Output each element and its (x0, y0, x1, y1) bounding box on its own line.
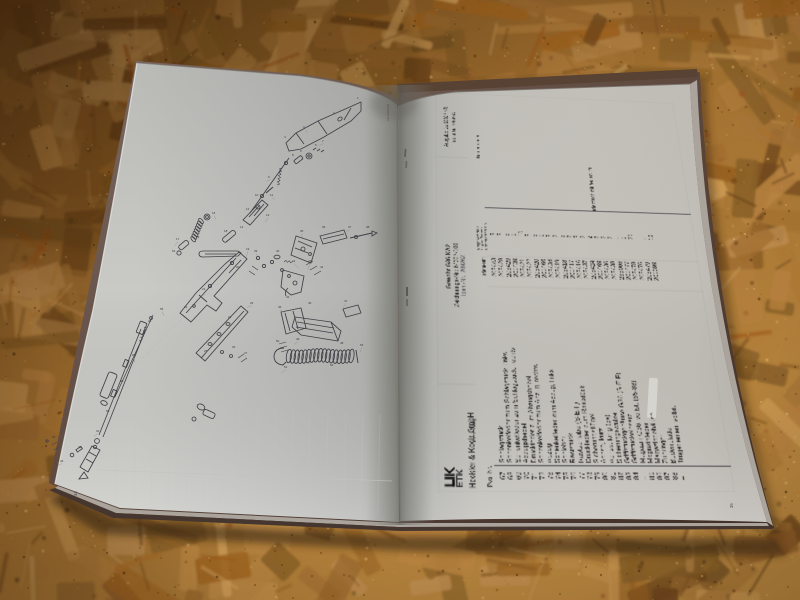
svg-text:76: 76 (571, 472, 579, 480)
svg-text:13: 13 (266, 213, 270, 217)
svg-text:5: 5 (560, 234, 567, 237)
svg-text:5: 5 (532, 234, 539, 237)
svg-text:78: 78 (587, 472, 595, 480)
svg-text:Ausgabe: 1a-1002 / NR: Ausgabe: 1a-1002 / NR (444, 107, 450, 147)
svg-text:2: 2 (580, 235, 587, 238)
svg-text:29: 29 (132, 353, 136, 357)
svg-text:28: 28 (148, 319, 152, 323)
svg-text:2: 2 (607, 236, 614, 239)
svg-text:20: 20 (628, 234, 635, 240)
svg-text:50: 50 (276, 339, 280, 343)
svg-text:74: 74 (555, 472, 563, 480)
svg-text:16: 16 (196, 235, 200, 239)
svg-text:Gewehr G36 KA2: Gewehr G36 KA2 (446, 244, 453, 289)
svg-text:5: 5 (511, 233, 518, 236)
svg-text:5: 5 (546, 234, 553, 237)
svg-text:45: 45 (278, 305, 282, 309)
svg-text:20: 20 (236, 265, 240, 269)
svg-text:47: 47 (344, 299, 348, 303)
svg-text:73: 73 (547, 472, 555, 480)
svg-text:23: 23 (250, 301, 254, 305)
svg-text:88: 88 (672, 472, 680, 480)
svg-text:72: 72 (539, 472, 547, 480)
svg-text:2: 2 (553, 234, 560, 237)
svg-text:Ident-Nr.: 99560A: Ident-Nr.: 99560A (452, 112, 458, 142)
svg-text:52: 52 (330, 363, 334, 367)
svg-text:67: 67 (500, 472, 508, 480)
svg-text:5: 5 (490, 232, 497, 235)
svg-text:56: 56 (106, 409, 110, 413)
svg-text:35: 35 (300, 229, 304, 233)
svg-text:82: 82 (618, 472, 626, 480)
svg-text:36: 36 (322, 225, 326, 229)
svg-text:12: 12 (246, 207, 250, 211)
svg-text:32: 32 (78, 445, 82, 449)
svg-text:48: 48 (340, 341, 344, 345)
svg-text:19: 19 (246, 247, 250, 251)
svg-text:54: 54 (172, 249, 176, 253)
svg-text:38: 38 (366, 225, 370, 229)
svg-text:43: 43 (308, 259, 312, 263)
svg-text:5: 5 (573, 235, 580, 238)
svg-text:84: 84 (633, 472, 641, 480)
svg-text:31: 31 (96, 429, 100, 433)
svg-text:Aw G36 KA2: Aw G36 KA2 (386, 104, 390, 121)
svg-text:Pos.-Nr.: Pos.-Nr. (487, 465, 494, 487)
svg-text:10: 10 (255, 193, 259, 197)
svg-text:49: 49 (296, 337, 300, 341)
svg-text:–: – (641, 237, 648, 240)
svg-text:ETK: ETK (454, 469, 465, 488)
svg-text:26: 26 (232, 345, 236, 349)
svg-text:77: 77 (579, 472, 587, 480)
svg-text:33: 33 (60, 459, 64, 463)
svg-text:10: 10 (648, 235, 655, 241)
svg-text:41: 41 (292, 259, 296, 263)
svg-text:11: 11 (270, 193, 273, 197)
svg-text:5: 5 (621, 236, 628, 239)
svg-text:2: 2 (587, 235, 594, 238)
svg-text:46: 46 (308, 301, 312, 305)
svg-text:39: 39 (254, 249, 258, 253)
svg-text:14: 14 (240, 225, 244, 229)
svg-text:Identisch mit /M. Nr. 21: Identisch mit /M. Nr. 21 (588, 167, 598, 211)
svg-text:80: 80 (602, 472, 610, 480)
svg-text:5: 5 (504, 233, 511, 236)
svg-text:34: 34 (52, 435, 56, 439)
svg-text:2: 2 (567, 235, 574, 238)
svg-text:aufkommenzahl in %: aufkommenzahl in % (484, 222, 489, 250)
svg-text:18: 18 (224, 229, 228, 233)
svg-text:71: 71 (531, 472, 539, 480)
svg-text:10: 10 (518, 231, 525, 237)
svg-text:205399: 205399 (651, 262, 660, 281)
svg-text:34: 34 (73, 491, 78, 496)
svg-text:22: 22 (184, 305, 188, 309)
svg-text:5: 5 (497, 233, 504, 236)
svg-text:55: 55 (160, 307, 164, 311)
svg-text:30: 30 (120, 379, 124, 383)
svg-text:5: 5 (525, 233, 532, 236)
svg-text:35: 35 (729, 503, 734, 508)
svg-text:Ident-Nr.: 209262: Ident-Nr.: 209262 (460, 255, 468, 296)
svg-text:69: 69 (516, 472, 524, 480)
svg-text:Ident-Nr.:: Ident-Nr.: (482, 256, 488, 275)
svg-text:17: 17 (176, 237, 180, 241)
svg-text:75: 75 (563, 472, 571, 480)
svg-text:51: 51 (284, 365, 288, 369)
svg-text:2: 2 (594, 236, 601, 239)
svg-text:40: 40 (276, 249, 280, 253)
svg-text:–: – (680, 476, 688, 480)
svg-text:21: 21 (202, 287, 206, 291)
svg-text:2: 2 (601, 236, 608, 239)
svg-text:27: 27 (244, 351, 248, 355)
svg-text:79: 79 (594, 472, 602, 480)
svg-text:Bemerkungen: Bemerkungen (476, 134, 482, 158)
svg-text:68: 68 (508, 472, 516, 480)
svg-text:24: 24 (228, 315, 232, 319)
svg-text:5: 5 (539, 234, 546, 237)
svg-text:–: – (614, 236, 621, 239)
svg-text:42: 42 (286, 295, 290, 299)
svg-text:53: 53 (360, 343, 364, 347)
svg-text:Bezeichnung: Bezeichnung (471, 418, 477, 444)
svg-text:44: 44 (320, 265, 324, 269)
svg-text:–: – (635, 237, 642, 240)
svg-text:15: 15 (212, 211, 216, 215)
svg-text:–: – (641, 476, 649, 480)
svg-text:37: 37 (348, 225, 352, 229)
svg-text:70: 70 (524, 472, 532, 480)
svg-text:25: 25 (204, 349, 208, 353)
